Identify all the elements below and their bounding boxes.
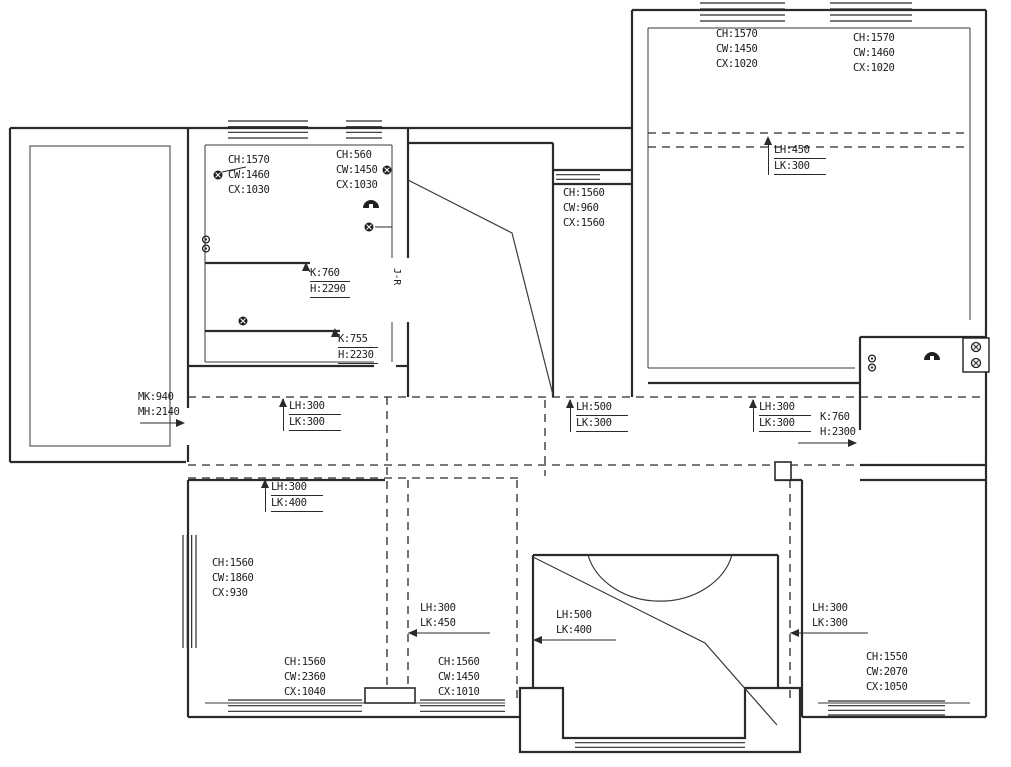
dim-label-text: CW:960 [563, 201, 604, 216]
ceiling-light-icon [369, 204, 373, 209]
dim-label-text: CH:1560 [438, 655, 479, 670]
dim-label-text: CW:1860 [212, 571, 253, 586]
dim-label-room-topright-b: CH:1570CW:1460CX:1020 [853, 31, 894, 76]
dim-label-door-marker-jr: J-R [389, 268, 404, 285]
floor-plan-canvas: CH:1570CW:1460CX:1030CH:560CW:1450CX:103… [0, 0, 1011, 767]
dim-label-beam-lower-left: LH:300LK:400 [265, 480, 323, 512]
dim-label-beam-topright: LH:450LK:300 [768, 143, 826, 175]
dim-label-text: LH:300 [271, 480, 323, 496]
dim-label-mid-window: CH:1560CW:960CX:1560 [563, 186, 604, 231]
dim-label-opening-k760-h2300: K:760H:2300 [820, 410, 856, 440]
wall-pier [775, 462, 791, 480]
arrowhead-icon [176, 419, 185, 427]
dim-label-text: CX:1050 [866, 680, 907, 695]
dim-label-text: CX:1010 [438, 685, 479, 700]
dim-label-text: CH:1550 [866, 650, 907, 665]
dim-label-text: MH:2140 [138, 405, 179, 420]
dim-label-text: CW:1450 [716, 42, 757, 57]
dim-label-text: LK:300 [812, 616, 848, 631]
dim-label-text: LH:500 [576, 400, 628, 416]
dim-label-text: CH:1560 [212, 556, 253, 571]
dim-label-text: CW:1460 [853, 46, 894, 61]
dim-label-text: CH:1570 [228, 153, 269, 168]
double-socket-icon [871, 366, 873, 368]
dim-label-beam-corridor-mid: LH:500LK:300 [570, 400, 628, 432]
dim-label-beam-corridor-left: LH:300LK:300 [283, 399, 341, 431]
dim-label-room-topleft-a: CH:1570CW:1460CX:1030 [228, 153, 269, 198]
dim-label-text: K:760 [820, 410, 856, 425]
arrowhead-icon [790, 629, 799, 637]
dim-label-text: LK:300 [576, 416, 628, 432]
double-socket-icon [205, 247, 207, 249]
dim-label-text: H:2290 [310, 282, 350, 298]
dim-label-beam-bottom-c: LH:300LK:300 [812, 601, 848, 631]
dim-label-beam-bottom-a: LH:300LK:450 [420, 601, 456, 631]
dim-label-text: CH:560 [336, 148, 377, 163]
wall-pier [365, 688, 415, 703]
dim-label-text: CX:1560 [563, 216, 604, 231]
arrowhead-icon [848, 439, 857, 447]
dim-label-text: CX:1030 [336, 178, 377, 193]
double-socket-icon [205, 238, 207, 240]
dim-label-text: CW:1450 [438, 670, 479, 685]
dim-label-text: MK:940 [138, 390, 179, 405]
arrowhead-icon [533, 636, 542, 644]
dim-label-text: CW:1460 [228, 168, 269, 183]
dim-label-text: LK:300 [289, 415, 341, 431]
dim-label-text: LH:300 [812, 601, 848, 616]
dim-label-room-topleft-b: CH:560CW:1450CX:1030 [336, 148, 377, 193]
stair-diagonal-line [408, 180, 553, 395]
stair-diagonal-line [533, 557, 777, 725]
dim-label-text: LH:500 [556, 608, 592, 623]
dim-label-text: K:760 [310, 266, 350, 282]
dim-label-text: LH:450 [774, 143, 826, 159]
dim-label-text: CX:1030 [228, 183, 269, 198]
dim-label-text: CX:1040 [284, 685, 325, 700]
dim-label-text: CH:1570 [716, 27, 757, 42]
dim-label-text: H:2300 [820, 425, 856, 440]
dim-label-text: LK:450 [420, 616, 456, 631]
dim-label-room-bottommid: CH:1560CW:1450CX:1010 [438, 655, 479, 700]
dim-label-text: CH:1570 [853, 31, 894, 46]
dim-label-text: LH:300 [420, 601, 456, 616]
dim-label-text: CH:1560 [563, 186, 604, 201]
dim-label-opening-k760-h2290: K:760H:2290 [310, 266, 350, 298]
dim-label-text: CX:1020 [853, 61, 894, 76]
dim-label-text: K:755 [338, 332, 378, 348]
dim-label-beam-bottom-b: LH:500LK:400 [556, 608, 592, 638]
floor-plan-drawing [0, 0, 1011, 767]
dim-label-text: LK:400 [556, 623, 592, 638]
dim-label-room-bottomleft-a: CH:1560CW:1860CX:930 [212, 556, 253, 601]
double-socket-icon [871, 357, 873, 359]
dim-label-text: LH:300 [289, 399, 341, 415]
dim-label-room-topright-a: CH:1570CW:1450CX:1020 [716, 27, 757, 72]
dim-label-text: LK:300 [759, 416, 811, 432]
dim-label-door-mk940: MK:940MH:2140 [138, 390, 179, 420]
dim-label-text: LH:300 [759, 400, 811, 416]
ceiling-light-icon [930, 356, 934, 361]
dim-label-beam-corridor-right: LH:300LK:300 [753, 400, 811, 432]
dim-label-text: CX:930 [212, 586, 253, 601]
dim-label-text: CW:2360 [284, 670, 325, 685]
dim-label-room-bottomleft-b: CH:1560CW:2360CX:1040 [284, 655, 325, 700]
dim-label-opening-k755-h2230: K:755H:2230 [338, 332, 378, 364]
wall-line [533, 688, 778, 738]
dim-label-text: CX:1020 [716, 57, 757, 72]
dim-label-text: H:2230 [338, 348, 378, 364]
dim-label-text: LK:300 [774, 159, 826, 175]
arc-line [588, 555, 732, 601]
arrowhead-icon [408, 629, 417, 637]
dim-label-text: J-R [389, 268, 404, 285]
dim-label-text: CW:1450 [336, 163, 377, 178]
dim-label-text: LK:400 [271, 496, 323, 512]
dim-label-text: CH:1560 [284, 655, 325, 670]
dim-label-text: CW:2070 [866, 665, 907, 680]
dim-label-room-bottomright: CH:1550CW:2070CX:1050 [866, 650, 907, 695]
